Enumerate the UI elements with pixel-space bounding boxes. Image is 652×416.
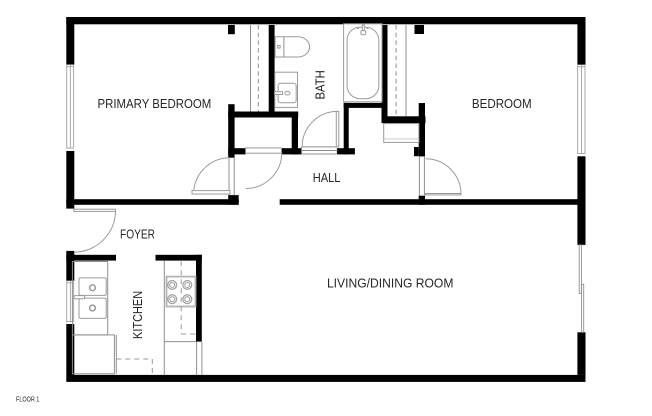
svg-text:LIVING/DINING ROOM: LIVING/DINING ROOM [327,276,454,291]
svg-text:FLOOR 1: FLOOR 1 [16,397,39,404]
svg-text:HALL: HALL [313,170,341,185]
svg-text:PRIMARY BEDROOM: PRIMARY BEDROOM [97,96,211,111]
svg-text:BATH: BATH [313,70,328,99]
svg-text:KITCHEN: KITCHEN [130,291,145,339]
svg-text:BEDROOM: BEDROOM [472,96,532,111]
svg-text:FOYER: FOYER [120,226,155,241]
